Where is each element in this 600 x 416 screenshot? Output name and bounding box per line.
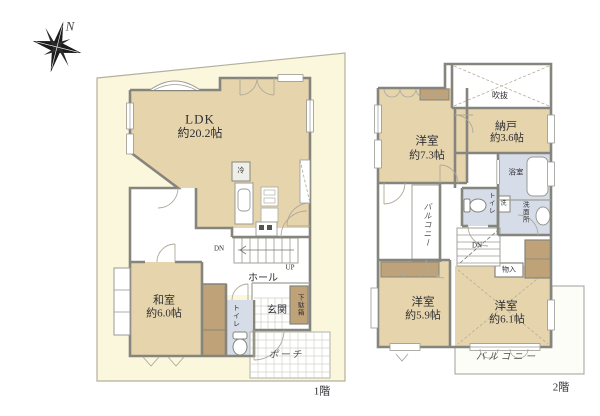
yoshitsu61-size: 約6.1帖: [489, 315, 525, 326]
stairs-up-1f-label: UP: [286, 265, 295, 272]
washitsu-closet: [202, 284, 226, 356]
yoshitsu59-name: 洋室: [412, 297, 435, 309]
genkan-label: 玄関: [267, 306, 287, 316]
senmenjo-label: 洗面所: [521, 201, 528, 224]
yoshitsu73-name: 洋室: [416, 136, 439, 148]
monoire-label: 物入: [502, 267, 516, 274]
nando-size: 約3.6帖: [490, 134, 524, 145]
washer-label: 洗: [500, 201, 506, 207]
room-hall-arm: [130, 188, 196, 262]
floor-plan-image: N LDK 約20.2帖 和室 約6.0帖 ホール 玄関 下駄箱 トイレ 冷 D…: [0, 0, 600, 416]
washitsu-name: 和室: [153, 296, 175, 307]
compass-north-label: N: [66, 20, 75, 33]
counter-icon: [261, 208, 278, 222]
stairs-1f: [234, 238, 298, 263]
floor1-label: 1階: [314, 387, 331, 398]
yoshitsu59-size: 約5.9帖: [405, 311, 441, 322]
toilet-icon-1f: [233, 332, 247, 355]
bathtub-icon: [527, 157, 548, 196]
balcony-left-label: バルコニー: [423, 203, 431, 248]
getabako-label: 下駄箱: [296, 294, 303, 317]
fukinuke-label: 吹抜: [492, 92, 508, 100]
stairs-dn-1f-label: DN: [214, 246, 224, 253]
hall-label: ホール: [248, 274, 278, 284]
sink-icon: [536, 207, 550, 225]
nando-name: 納戸: [495, 122, 517, 133]
porch-label: ポーチ: [269, 351, 304, 361]
washitsu-size: 約6.0帖: [146, 309, 182, 320]
yoshitsu73-size: 約7.3帖: [409, 151, 445, 162]
yokushitsu-label: 浴室: [509, 168, 524, 176]
ldk-name: LDK: [185, 113, 215, 126]
stairs-dn-2f-label: DN: [472, 243, 482, 250]
compass-icon: [26, 16, 87, 79]
yoshitsu61-name: 洋室: [495, 301, 518, 313]
toilet-2f-label: トイレ: [487, 192, 494, 215]
kitchen-sink-icon: [238, 189, 250, 211]
fridge-label: 冷: [238, 168, 245, 175]
toilet-icon-2f: [464, 199, 486, 212]
toilet-1f-label: トイレ: [233, 304, 240, 328]
floor2-label: 2階: [553, 383, 570, 394]
ldk-size: 約20.2帖: [177, 127, 222, 139]
balcony-bottom-label: バルコニー: [476, 353, 538, 363]
